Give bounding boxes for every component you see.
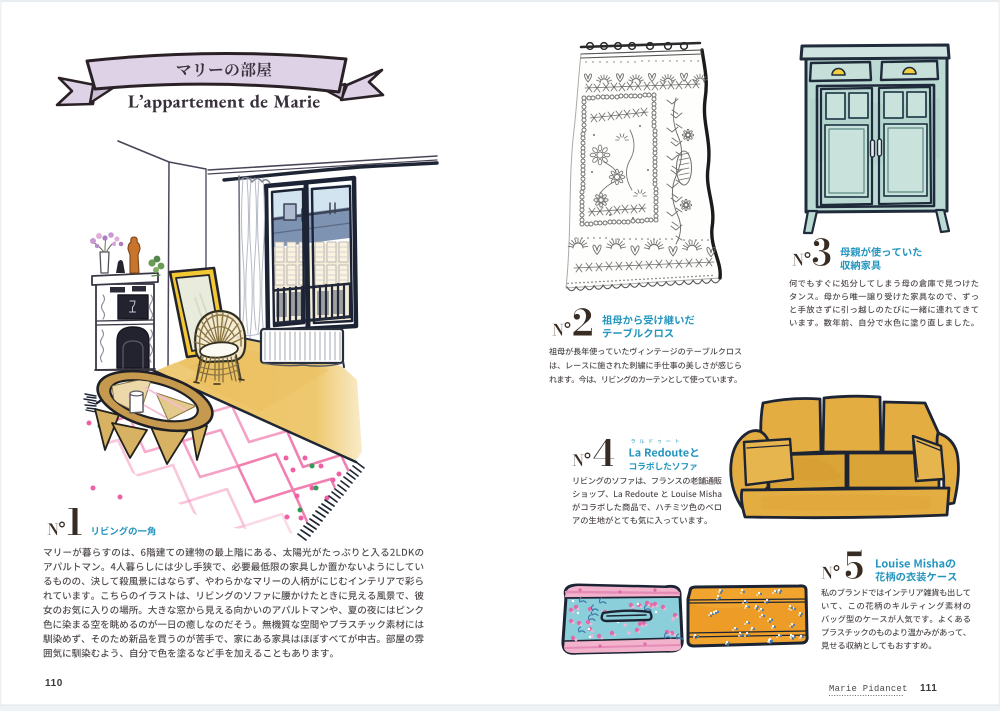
svg-text:110: 110 — [45, 678, 63, 689]
svg-text:Marie Pidancet: Marie Pidancet — [829, 684, 908, 694]
svg-text:111: 111 — [920, 683, 937, 694]
